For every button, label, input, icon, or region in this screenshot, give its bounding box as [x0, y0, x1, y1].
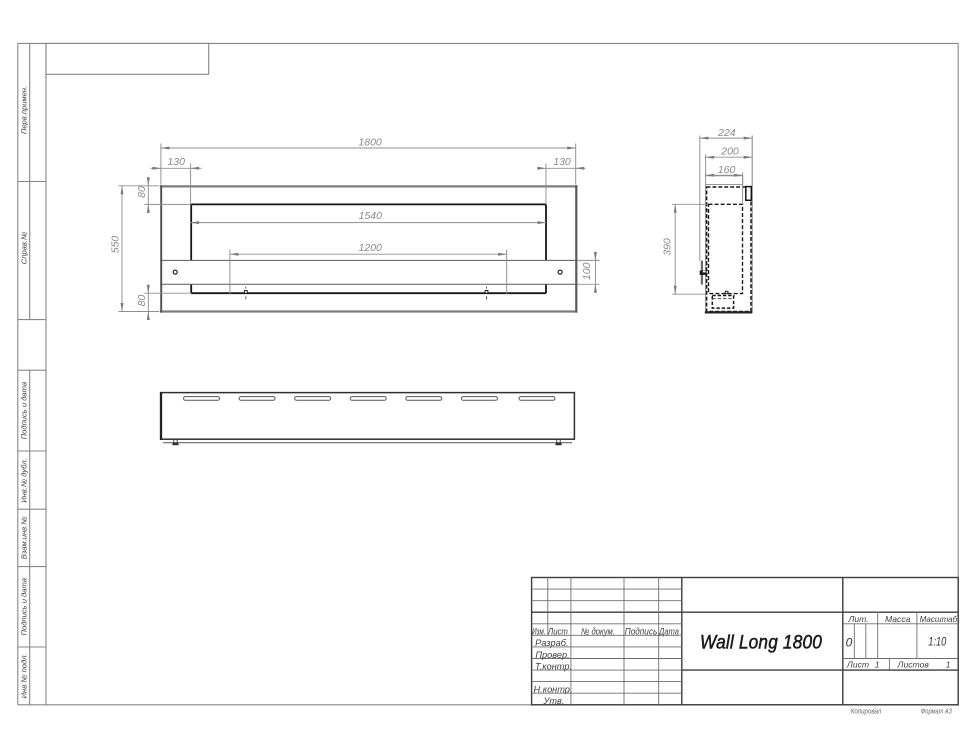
svg-text:Подпись и дата: Подпись и дата: [20, 578, 29, 635]
svg-text:Лист: Лист: [547, 626, 568, 636]
svg-text:Утв.: Утв.: [542, 696, 564, 706]
svg-text:Масштаб: Масштаб: [920, 614, 959, 624]
svg-text:100: 100: [581, 262, 593, 280]
svg-text:№ докум.: № докум.: [581, 626, 615, 636]
svg-text:Перв.примен.: Перв.примен.: [19, 86, 28, 134]
svg-text:Взам.инв.№: Взам.инв.№: [20, 517, 29, 560]
svg-text:80: 80: [136, 295, 148, 307]
svg-text:130: 130: [553, 156, 571, 168]
svg-text:200: 200: [720, 145, 739, 157]
svg-text:1200: 1200: [359, 242, 383, 254]
svg-text:Лист: Лист: [846, 659, 869, 669]
svg-text:1800: 1800: [358, 136, 382, 148]
svg-text:Подпись: Подпись: [625, 626, 658, 636]
svg-text:1: 1: [875, 659, 880, 669]
svg-text:Дата: Дата: [658, 626, 679, 636]
svg-text:Разраб.: Разраб.: [535, 638, 568, 648]
svg-text:0: 0: [846, 636, 853, 650]
svg-text:Подпись и дата: Подпись и дата: [20, 382, 29, 439]
svg-text:Н.контр.: Н.контр.: [534, 685, 573, 695]
svg-text:Провер.: Провер.: [535, 650, 569, 660]
svg-text:Справ.№: Справ.№: [19, 232, 28, 264]
svg-text:160: 160: [718, 164, 736, 176]
svg-text:Инв.№ подл.: Инв.№ подл.: [20, 653, 29, 698]
svg-text:Копировал: Копировал: [851, 706, 882, 715]
svg-text:550: 550: [110, 236, 122, 254]
svg-text:Листов: Листов: [897, 659, 930, 669]
svg-text:80: 80: [136, 186, 148, 198]
svg-text:Лит.: Лит.: [847, 614, 868, 624]
svg-text:Формат А3: Формат А3: [921, 706, 952, 715]
svg-text:Т.контр.: Т.контр.: [535, 661, 572, 671]
svg-text:1540: 1540: [359, 210, 383, 222]
svg-text:130: 130: [167, 156, 185, 168]
svg-text:1:10: 1:10: [928, 635, 946, 649]
svg-text:390: 390: [662, 238, 674, 256]
svg-text:1: 1: [946, 659, 951, 669]
svg-text:Масса: Масса: [885, 614, 911, 624]
svg-text:Инв.№ дубл.: Инв.№ дубл.: [20, 458, 29, 503]
svg-text:Wall Long 1800: Wall Long 1800: [700, 632, 822, 654]
svg-text:Изм.: Изм.: [532, 626, 546, 636]
svg-text:224: 224: [717, 127, 736, 139]
